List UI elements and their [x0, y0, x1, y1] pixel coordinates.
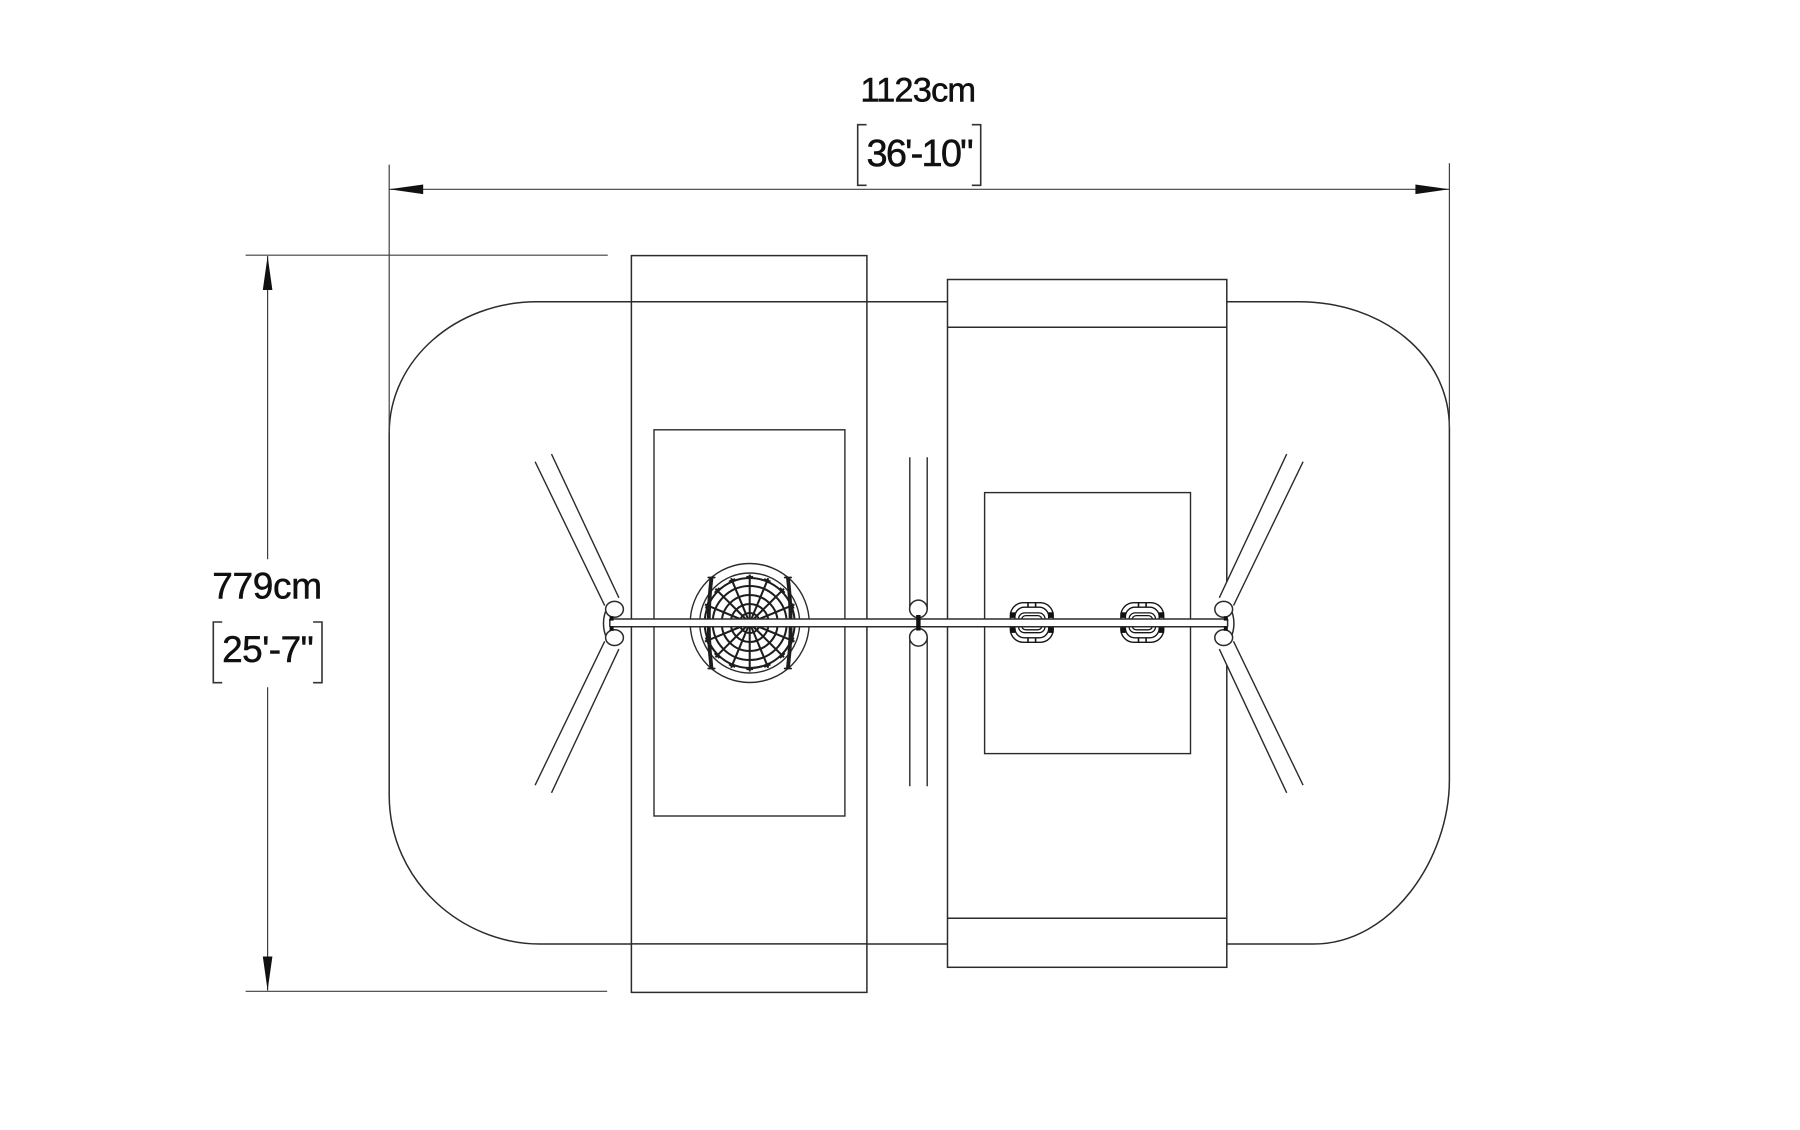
svg-text:1123cm: 1123cm: [860, 71, 975, 109]
svg-text:36'-10": 36'-10": [867, 133, 973, 175]
svg-text:779cm: 779cm: [212, 566, 322, 607]
svg-text:25'-7": 25'-7": [222, 629, 313, 670]
